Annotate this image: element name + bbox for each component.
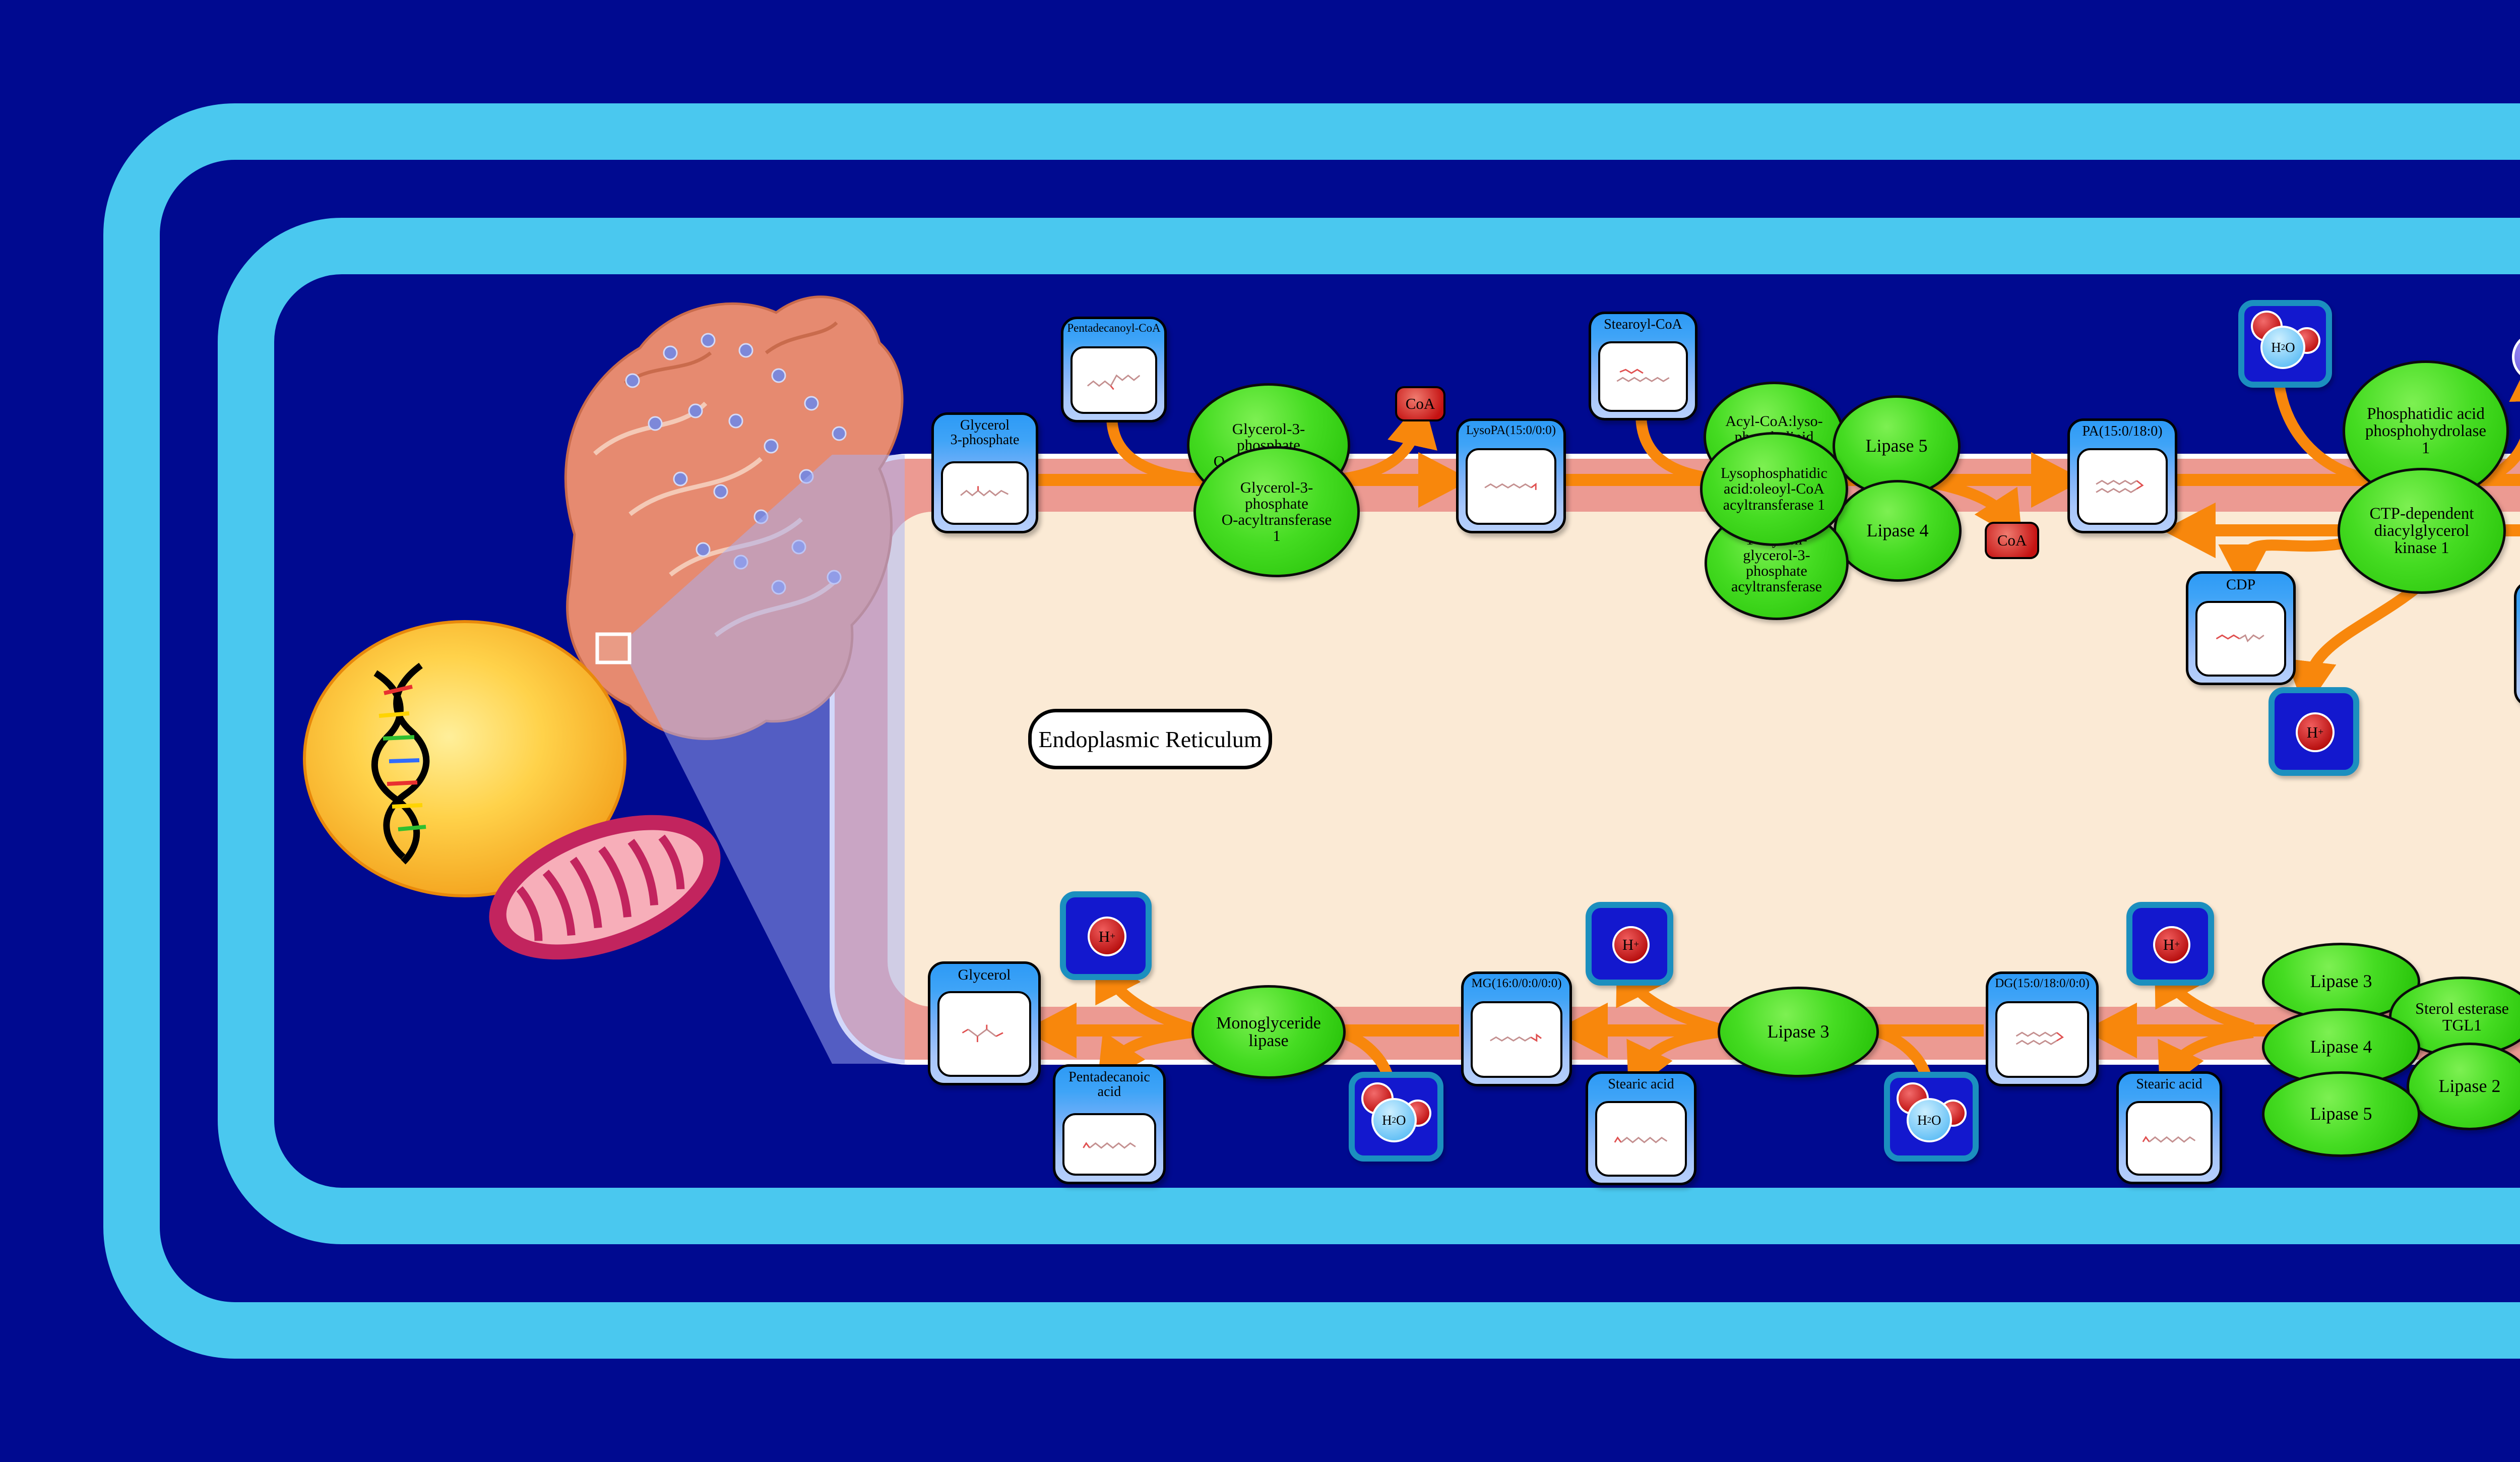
node-label: Stearic acid — [1588, 1077, 1694, 1091]
molecule-structure — [1471, 1001, 1562, 1078]
node-label: Stearoyl-CoA — [1591, 317, 1695, 332]
enzyme-label: Lipase 3 — [1768, 1022, 1830, 1041]
h2o-icon[interactable]: H2O — [1349, 1072, 1443, 1162]
enzyme-label: CTP-dependent diacylglycerol kinase 1 — [2369, 505, 2474, 557]
enzyme-label: Lysophosphatidic acid:oleoyl-CoA acyltra… — [1721, 465, 1828, 513]
proton-label: H+ — [2296, 712, 2335, 752]
node-cytidine-triphosphate[interactable]: Cytidine triphosphate — [2514, 581, 2520, 707]
node-label: CDP — [2188, 577, 2293, 593]
molecule-structure — [1595, 1101, 1687, 1177]
enzyme-label: Lipase 2 — [2439, 1077, 2501, 1095]
h-plus-icon[interactable]: H+ — [2126, 902, 2214, 986]
molecule-structure — [1062, 1113, 1156, 1176]
enzyme-label: Monoglyceride lipase — [1216, 1014, 1321, 1050]
node-lysopa[interactable]: LysoPA(15:0/0:0) — [1456, 418, 1566, 533]
molecule-structure — [2195, 601, 2286, 677]
node-label: Glycerol 3-phosphate — [934, 418, 1036, 448]
node-label: LysoPA(15:0/0:0) — [1459, 424, 1563, 437]
pathway-canvas: Glycerol-3- phosphate O-acyltransferase … — [0, 0, 2520, 1462]
enzyme-gpat1[interactable]: Glycerol-3- phosphate O-acyltransferase … — [1193, 446, 1360, 577]
molecule-structure — [1070, 346, 1157, 414]
molecule-structure — [941, 461, 1029, 525]
node-label: Stearic acid — [2119, 1077, 2220, 1091]
coa-icon[interactable]: CoA — [1395, 386, 1445, 421]
node-label: Pentadecanoic acid — [1055, 1070, 1163, 1100]
h-plus-icon[interactable]: H+ — [2269, 687, 2359, 776]
node-pentadecanoic-acid[interactable]: Pentadecanoic acid — [1053, 1064, 1166, 1184]
enzyme-lysophosphatidic-acyltransferase1[interactable]: Lysophosphatidic acid:oleoyl-CoA acyltra… — [1700, 432, 1848, 546]
enzyme-label: Lipase 3 — [2310, 972, 2372, 991]
enzyme-label: Lipase 4 — [1867, 521, 1929, 540]
node-label: Glycerol — [930, 967, 1038, 983]
node-stearic-acid-left[interactable]: Stearic acid — [1586, 1071, 1696, 1185]
enzyme-monoglyceride-lipase[interactable]: Monoglyceride lipase — [1191, 985, 1346, 1079]
proton-label: H+ — [2153, 926, 2190, 964]
node-pa[interactable]: PA(15:0/18:0) — [2067, 418, 2177, 533]
node-glycerol-3-phosphate[interactable]: Glycerol 3-phosphate — [931, 412, 1038, 533]
node-glycerol[interactable]: Glycerol — [928, 961, 1041, 1085]
node-stearic-acid-right[interactable]: Stearic acid — [2116, 1071, 2222, 1184]
molecule-structure — [937, 991, 1031, 1077]
node-label: DG(15:0/18:0/0:0) — [1988, 977, 2096, 990]
node-label: PA(15:0/18:0) — [2070, 424, 2175, 439]
enzyme-lipase4-top[interactable]: Lipase 4 — [1834, 480, 1962, 582]
node-label: Cytidine triphosphate — [2516, 586, 2520, 616]
enzyme-label: Lipase 4 — [2310, 1038, 2372, 1056]
enzyme-label: Lipase 5 — [1866, 437, 1928, 455]
molecule-structure — [1466, 448, 1556, 525]
node-dg-bottom[interactable]: DG(15:0/18:0/0:0) — [1986, 971, 2099, 1086]
node-pentadecanoyl-coa[interactable]: Pentadecanoyl-CoA — [1061, 317, 1167, 422]
compartment-label: Endoplasmic Reticulum — [1028, 709, 1272, 769]
enzyme-lipase5-cluster[interactable]: Lipase 5 — [2262, 1071, 2420, 1157]
proton-label: H+ — [1612, 926, 1650, 964]
molecule-structure — [1995, 1001, 2089, 1078]
node-label: MG(16:0/0:0/0:0) — [1464, 977, 1569, 990]
enzyme-label: Sterol esterase TGL1 — [2415, 1000, 2509, 1034]
h-plus-icon[interactable]: H+ — [1060, 891, 1152, 980]
zoom-source-box — [597, 634, 629, 662]
molecule-structure — [2126, 1101, 2213, 1176]
water-label: H2O — [2260, 326, 2305, 369]
h-plus-icon[interactable]: H+ — [1586, 902, 1673, 986]
proton-label: H+ — [1088, 917, 1127, 956]
enzyme-ctp-dependent-dag-kinase1[interactable]: CTP-dependent diacylglycerol kinase 1 — [2338, 468, 2506, 594]
node-stearoyl-coa-top[interactable]: Stearoyl-CoA — [1589, 312, 1697, 420]
node-label: Pentadecanoyl-CoA — [1063, 322, 1164, 334]
molecule-structure — [2077, 448, 2168, 525]
node-mg[interactable]: MG(16:0/0:0/0:0) — [1461, 971, 1572, 1086]
molecule-structure — [1598, 341, 1688, 412]
enzyme-label: Lipase 5 — [2310, 1105, 2372, 1123]
enzyme-label: Phosphatidic acid phosphohydrolase 1 — [2365, 405, 2486, 457]
enzyme-label: Glycerol-3- phosphate O-acyltransferase … — [1222, 479, 1332, 544]
h2o-icon[interactable]: H2O — [1884, 1072, 1979, 1162]
coa-icon[interactable]: CoA — [1985, 522, 2039, 559]
water-label: H2O — [1907, 1098, 1952, 1142]
water-label: H2O — [1371, 1098, 1417, 1142]
enzyme-lipase3[interactable]: Lipase 3 — [1718, 987, 1879, 1077]
node-cdp[interactable]: CDP — [2186, 571, 2296, 685]
h2o-icon[interactable]: H2O — [2238, 300, 2332, 388]
